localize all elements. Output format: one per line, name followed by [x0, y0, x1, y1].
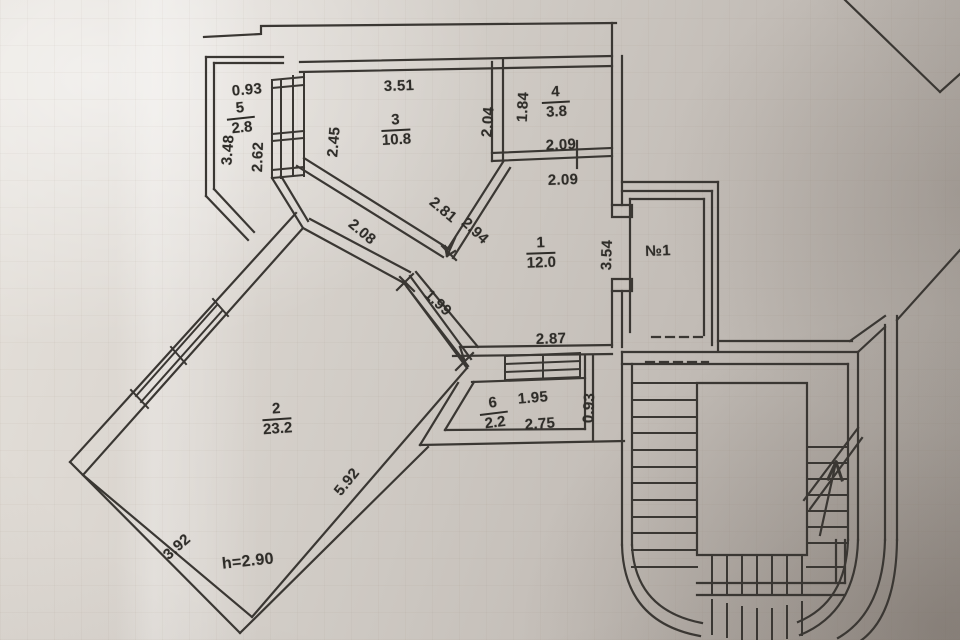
- dim-room3-right: 2.04: [478, 106, 497, 138]
- room4-number: 4: [541, 84, 570, 104]
- room5-area: 2.8: [231, 118, 253, 137]
- room2-area: 23.2: [263, 419, 293, 438]
- stair-landing: [697, 383, 807, 555]
- room3-number: 3: [381, 112, 410, 132]
- unit-number-label: №1: [645, 242, 671, 260]
- room2-number: 2: [262, 400, 292, 421]
- floor-plan-drawing: [0, 0, 960, 640]
- window-symbol-room5: [272, 74, 304, 178]
- dim-wall-262: 2.62: [249, 142, 267, 173]
- room-label-1: 1 12.0: [526, 235, 556, 271]
- outer-top-wall: [204, 23, 616, 72]
- room-label-4: 4 3.8: [541, 84, 571, 121]
- window-symbol-room2: [131, 299, 228, 408]
- stair-treads-left: [632, 383, 697, 567]
- dim-room1-right: 3.54: [598, 240, 616, 271]
- dim-room4-door: 2.09: [548, 171, 579, 189]
- room3-area: 10.8: [381, 130, 411, 148]
- stair-treads-exit: [712, 600, 802, 640]
- room-label-6: 6 2.2: [478, 394, 510, 433]
- dim-balcony6-bottom: 2.75: [524, 414, 556, 433]
- dim-room4-width: 2.09: [545, 136, 576, 155]
- room1-area: 12.0: [526, 253, 556, 271]
- dim-balcony5-side: 3.48: [218, 134, 237, 166]
- dim-room3-top: 3.51: [384, 77, 415, 95]
- room6-area: 2.2: [484, 413, 507, 432]
- room-label-2: 2 23.2: [261, 400, 293, 437]
- dim-balcony5-width: 0.93: [231, 80, 263, 100]
- dim-room3-left: 2.45: [324, 126, 344, 158]
- stair-treads-bottom: [712, 555, 802, 595]
- room1-bottom-wall: [453, 345, 612, 368]
- stairwell-walls: [622, 341, 858, 636]
- dim-room1-bottom: 2.87: [536, 330, 567, 348]
- room1-number: 1: [526, 235, 555, 255]
- dim-balcony6-depth: 0.93: [580, 392, 599, 423]
- corridor-openings-dashed: [646, 337, 708, 362]
- room-label-5: 5 2.8: [225, 99, 257, 137]
- room-label-3: 3 10.8: [380, 112, 411, 149]
- corridor-walls: [622, 182, 718, 350]
- window-symbol-room6: [505, 353, 580, 380]
- dim-room4-left: 1.84: [514, 91, 533, 122]
- dim-balcony6-top: 1.95: [517, 388, 549, 408]
- neighbour-unit-outline: [845, 0, 960, 320]
- floor-plan-photo: 0.93 5 2.8 3.48 2.62 2.45 3.51 3 10.8 2.…: [0, 0, 960, 640]
- room4-area: 3.8: [546, 102, 568, 120]
